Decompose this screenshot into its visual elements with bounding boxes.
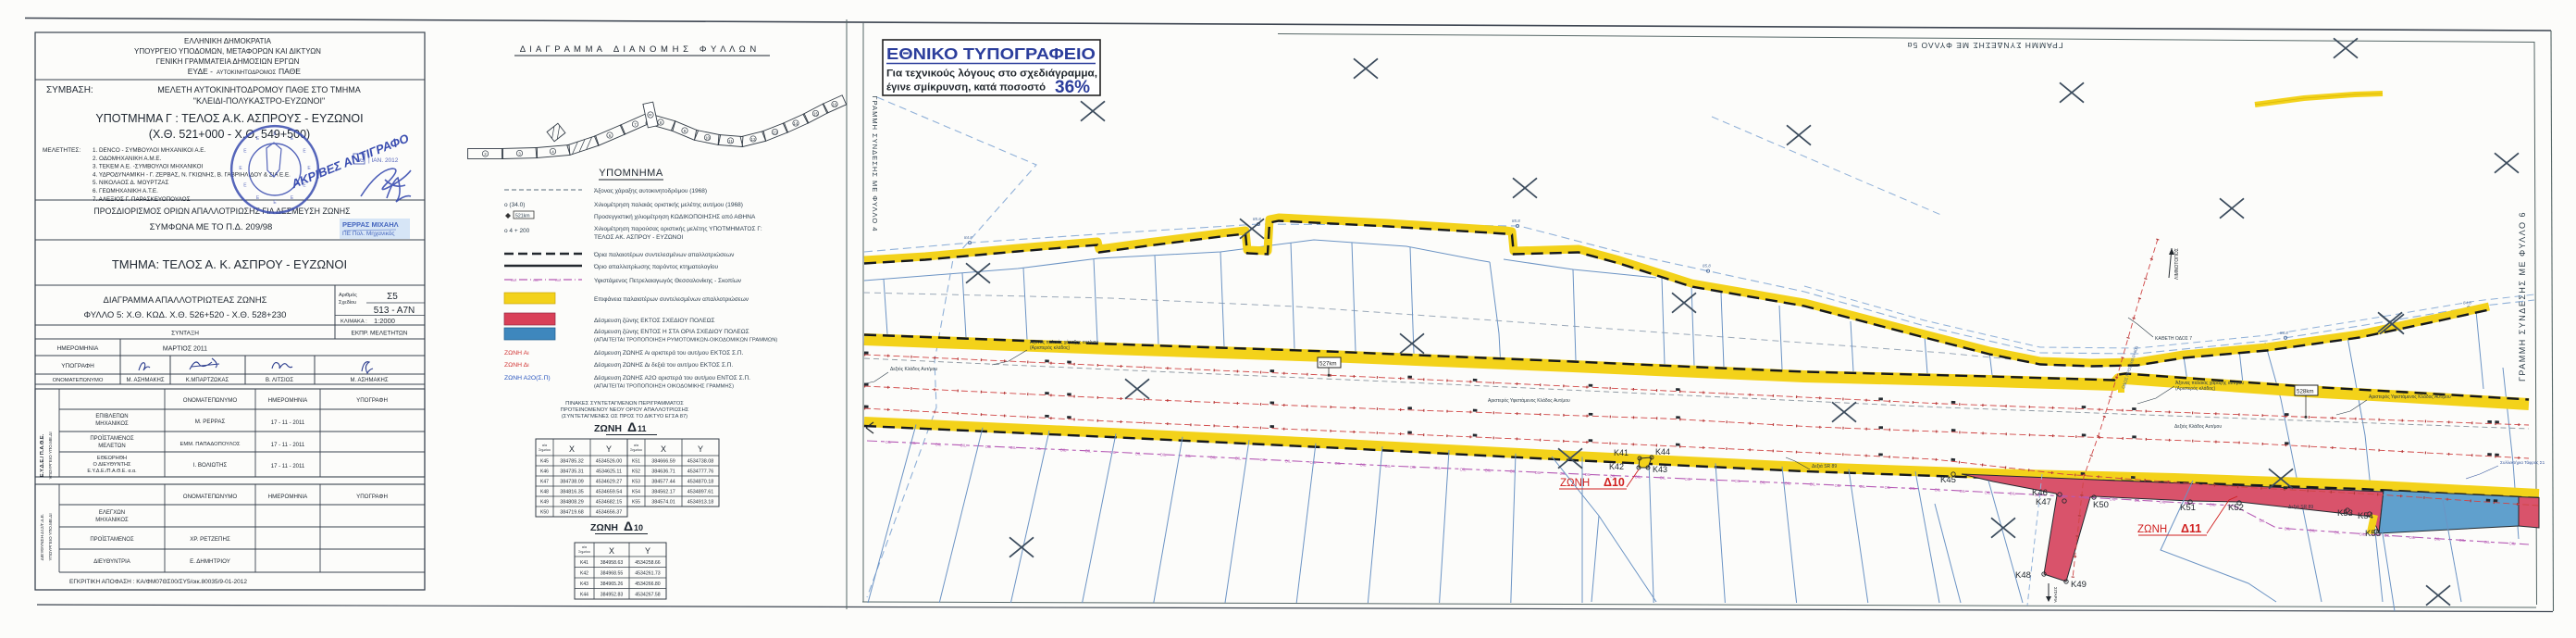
svg-text:Ο ΔΙΕΥΘΥΝΤΗΣ: Ο ΔΙΕΥΘΥΝΤΗΣ	[93, 462, 131, 468]
svg-text:ΗΜΕΡΟΜΗΝΙΑ: ΗΜΕΡΟΜΗΝΙΑ	[268, 494, 308, 500]
svg-text:Ι. ΒΟΛΙΩΤΗΣ: Ι. ΒΟΛΙΩΤΗΣ	[193, 462, 228, 469]
svg-text:ΣΥΜΦΩΝΑ ΜΕ ΤΟ Π.Δ. 209/98: ΣΥΜΦΩΝΑ ΜΕ ΤΟ Π.Δ. 209/98	[150, 222, 273, 232]
svg-text:384738.09: 384738.09	[560, 480, 583, 485]
svg-text:Όριο απαλλοτρίωσης παρόντος κτ: Όριο απαλλοτρίωσης παρόντος κτηματολογίο…	[593, 263, 718, 270]
svg-text:7. ΑΛΕΞΙΟΣ Γ. ΠΑΡΑΣΚΕΥΟΠΟΥΛΟΣ: 7. ΑΛΕΞΙΟΣ Γ. ΠΑΡΑΣΚΕΥΟΠΟΥΛΟΣ	[93, 196, 191, 203]
svg-text:| ΙΑΝ. 2012: | ΙΑΝ. 2012	[368, 157, 399, 164]
svg-text:2. ΟΔΟΜΗΧΑΝΙΚΗ Α.Μ.Ε.: 2. ΟΔΟΜΗΧΑΝΙΚΗ Α.Μ.Ε.	[93, 156, 162, 162]
svg-text:K42: K42	[580, 571, 588, 577]
svg-text:3. ΤΕΚΕΜ Α.Ε. -ΣΥΜΒΟΥΛΟΙ ΜΗΧΑ: 3. ΤΕΚΕΜ Α.Ε. -ΣΥΜΒΟΥΛΟΙ ΜΗΧΑΝΙΚΟΙ	[93, 164, 204, 170]
svg-text:13: 13	[773, 130, 778, 134]
svg-text:11: 11	[728, 139, 733, 144]
svg-text:K50: K50	[540, 510, 549, 516]
svg-text:ΟIL: ΟIL	[2384, 533, 2391, 538]
svg-text:K55: K55	[2365, 529, 2381, 539]
svg-text:4534897.61: 4534897.61	[687, 490, 713, 495]
svg-text:17 - 11 - 2011: 17 - 11 - 2011	[271, 443, 305, 448]
svg-text:ΟIL: ΟIL	[1335, 461, 1342, 466]
svg-text:ΡΕΡΡΑΣ ΜΙΧΑΗΛ: ΡΕΡΡΑΣ ΜΙΧΑΗΛ	[342, 220, 399, 229]
svg-text:K49: K49	[540, 500, 549, 506]
svg-text:513 - Α7Ν: 513 - Α7Ν	[374, 306, 415, 316]
svg-text:ΣΥΝΤΑΞΗ: ΣΥΝΤΑΞΗ	[171, 331, 199, 337]
svg-text:ΟIL: ΟIL	[1410, 465, 1417, 469]
svg-text:ΥΠΟΓΡΑΦΗ: ΥΠΟΓΡΑΦΗ	[356, 397, 388, 404]
svg-text:Αριθμός: Αριθμός	[339, 292, 357, 298]
svg-text:ΟIL: ΟIL	[2285, 527, 2291, 532]
svg-text:ΥΠΟΓΡΑΦΗ: ΥΠΟΓΡΑΦΗ	[61, 363, 94, 369]
svg-text:ΥΠΟΓΡΑΦΗ: ΥΠΟΓΡΑΦΗ	[356, 494, 388, 500]
svg-text:Κ.ΜΠΑΡΤΖΩΚΑΣ: Κ.ΜΠΑΡΤΖΩΚΑΣ	[186, 378, 229, 383]
svg-text:ΟIL: ΟIL	[2509, 542, 2516, 546]
svg-text:ΣΙΤΑΡΙΑ: ΣΙΤΑΡΙΑ	[2053, 587, 2058, 603]
svg-text:384952.83: 384952.83	[601, 593, 624, 598]
svg-text:85.8: 85.8	[1253, 217, 1261, 221]
svg-text:ΕΘΕΩΡΗΘΗ: ΕΘΕΩΡΗΘΗ	[97, 456, 127, 461]
svg-text:ΗΜΕΡΟΜΗΝΙΑ: ΗΜΕΡΟΜΗΝΙΑ	[57, 345, 99, 352]
svg-text:ΑΥΤΟΚΙΝΗΤΟΔΡΟΜΟΣ: ΑΥΤΟΚΙΝΗΤΟΔΡΟΜΟΣ	[217, 70, 277, 76]
svg-text:ΔΙΑΓΡΑΜΜΑ ΑΠΑΛΛΟΤΡΙΩΤΕΑΣ ΖΩΝΗΣ: ΔΙΑΓΡΑΜΜΑ ΑΠΑΛΛΟΤΡΙΩΤΕΑΣ ΖΩΝΗΣ	[103, 295, 266, 306]
svg-text:4. ΥΔΡΟΔΥΝΑΜΙΚΗ - Γ. ΖΕΡΒΑΣ,: 4. ΥΔΡΟΔΥΝΑΜΙΚΗ - Γ. ΖΕΡΒΑΣ, Ν. ΓΚΙΩΝΗΣ,…	[93, 171, 291, 178]
svg-text:ΟIL: ΟIL	[2085, 495, 2091, 500]
svg-text:K55: K55	[632, 500, 640, 506]
svg-text:ΕΘΝΙΚΟ ΤΥΠΟΓΡΑΦΕΙΟ: ΕΘΝΙΚΟ ΤΥΠΟΓΡΑΦΕΙΟ	[886, 44, 1096, 63]
svg-text:X: X	[609, 546, 614, 556]
svg-text:ΕΥΔΕ -: ΕΥΔΕ -	[188, 67, 213, 76]
svg-text:384816.35: 384816.35	[560, 490, 583, 495]
svg-text:ΟIL: ΟIL	[2160, 499, 2166, 504]
svg-text:384968.55: 384968.55	[601, 571, 624, 577]
svg-text:K41: K41	[1614, 448, 1629, 457]
svg-text:ΤΜΗΜΑ: ΤΕΛΟΣ Α. Κ. ΑΣΠΡΟΥ - Ε: ΤΜΗΜΑ: ΤΕΛΟΣ Α. Κ. ΑΣΠΡΟΥ - ΕΥΖΩΝΟΙ	[112, 257, 347, 271]
svg-text:ΟIL: ΟIL	[1835, 483, 1841, 488]
svg-text:ΠΡΟΣΔΙΟΡΙΣΜΟΣ ΟΡΙΩΝ ΑΠΑΛΛΟΤΡΙΩ: ΠΡΟΣΔΙΟΡΙΣΜΟΣ ΟΡΙΩΝ ΑΠΑΛΛΟΤΡΙΩΣΗΣ ΓΙΑ ΔΕ…	[93, 206, 351, 216]
svg-text:Δ: Δ	[627, 419, 637, 434]
svg-text:ΟIL: ΟIL	[2310, 529, 2316, 533]
svg-text:384735.31: 384735.31	[560, 469, 583, 475]
svg-text:K54: K54	[632, 490, 640, 495]
svg-text:ΔΙΕΥΘΥΝΣΗ Δ12/Γ.Δ.Ε.: ΔΙΕΥΘΥΝΣΗ Δ12/Γ.Δ.Ε.	[40, 514, 45, 561]
svg-text:K54: K54	[2358, 511, 2373, 521]
svg-text:ΠΡΟΪΣΤΑΜΕΝΟΣ: ΠΡΟΪΣΤΑΜΕΝΟΣ	[90, 536, 134, 543]
svg-text:Υφιστάμενος Πετρελαιαγωγός Θε: Υφιστάμενος Πετρελαιαγωγός Θεσσαλονίκης …	[594, 277, 741, 284]
svg-text:ΟIL: ΟIL	[1685, 477, 1691, 482]
svg-text:X: X	[661, 444, 666, 454]
svg-text:X: X	[569, 444, 575, 454]
svg-text:ΟIL: ΟIL	[2484, 540, 2491, 544]
svg-text:ΟIL: ΟIL	[1210, 455, 1217, 459]
svg-text:ΤΕΛΟΣ ΑΚ. ΑΣΠΡΟΥ - ΕΥΖΩΝΟΙ: ΤΕΛΟΣ ΑΚ. ΑΣΠΡΟΥ - ΕΥΖΩΝΟΙ	[594, 234, 683, 241]
svg-text:έγινε σμίκρυνση, κατά ποσοστό: έγινε σμίκρυνση, κατά ποσοστό	[886, 82, 1046, 94]
svg-text:Σημείου: Σημείου	[630, 448, 642, 452]
svg-text:K52: K52	[2228, 503, 2244, 513]
svg-text:K51: K51	[632, 459, 640, 465]
svg-text:ΟIL: ΟIL	[1910, 486, 1916, 491]
svg-text:K48: K48	[2015, 570, 2031, 581]
svg-text:ΓΡΑΜΜΗ ΣΥΝΔΕΣΗΣ ΜΕ ΦΥΛΛΟ 5α: ΓΡΑΜΜΗ ΣΥΝΔΕΣΗΣ ΜΕ ΦΥΛΛΟ 5α	[1907, 41, 2063, 50]
svg-text:4534913.18: 4534913.18	[687, 500, 713, 506]
svg-text:521km: 521km	[515, 214, 530, 219]
svg-text:ΟIL: ΟIL	[1010, 445, 1017, 450]
svg-text:Άξονας παλαιάς χάραξης αυτ/μου: Άξονας παλαιάς χάραξης αυτ/μου	[2175, 380, 2244, 386]
svg-text:ΚΑΘΕΤΗ ΟΔΟΣ 7: ΚΑΘΕΤΗ ΟΔΟΣ 7	[2155, 336, 2192, 342]
svg-text:ΟIL: ΟIL	[555, 278, 562, 282]
svg-text:ΟΝΟΜΑΤΕΠΩΝΥΜΟ: ΟΝΟΜΑΤΕΠΩΝΥΜΟ	[183, 397, 238, 404]
svg-text:ΟIL: ΟIL	[1435, 466, 1442, 470]
svg-text:11: 11	[638, 424, 647, 433]
svg-text:14: 14	[793, 121, 799, 126]
svg-text:(ΑΠΑΙΤΕΙΤΑΙ ΤΡΟΠΟΠΟΙΗΣΗ ΟΙΚΟΔΟ: (ΑΠΑΙΤΕΙΤΑΙ ΤΡΟΠΟΠΟΙΗΣΗ ΟΙΚΟΔΟΜΙΚΗΣ ΓΡΑΜ…	[594, 384, 734, 390]
svg-text:(Χ.Θ. 521+000 - Χ.Θ. 549+500): (Χ.Θ. 521+000 - Χ.Θ. 549+500)	[149, 128, 310, 141]
svg-text:ΟIL: ΟIL	[2459, 538, 2466, 543]
svg-text:ΟIL: ΟIL	[2210, 503, 2216, 507]
svg-text:12: 12	[750, 137, 756, 142]
svg-text:ΖΩΝΗ Α2Ο(Σ.Π): ΖΩΝΗ Α2Ο(Σ.Π)	[504, 375, 551, 382]
svg-text:(Αριστερός κλάδος): (Αριστερός κλάδος)	[2175, 385, 2215, 392]
svg-text:K44: K44	[1655, 447, 1670, 457]
svg-text:Αριστερός Υφιστάμενος Κλάδος Α: Αριστερός Υφιστάμενος Κλάδος Αυτ/μου	[2369, 394, 2451, 400]
svg-text:384562.17: 384562.17	[651, 490, 675, 495]
svg-text:17 - 11 - 2011: 17 - 11 - 2011	[271, 420, 305, 426]
svg-text:4534659.54: 4534659.54	[596, 490, 622, 495]
svg-text:Β. ΛΙΤΣΙΟΣ: Β. ΛΙΤΣΙΟΣ	[266, 378, 293, 383]
svg-text:16: 16	[832, 102, 837, 106]
svg-text:10: 10	[705, 135, 711, 140]
svg-text:Ε.Υ.Δ.Ε./ Π.Α.Θ.Ε.: Ε.Υ.Δ.Ε./ Π.Α.Θ.Ε.	[40, 433, 45, 477]
svg-text:4534261.73: 4534261.73	[635, 571, 661, 577]
svg-text:384808.29: 384808.29	[560, 500, 583, 506]
svg-text:Μ. ΑΣΗΜΑΚΗΣ: Μ. ΑΣΗΜΑΚΗΣ	[126, 378, 164, 383]
svg-text:ΟIL: ΟIL	[1185, 454, 1192, 458]
svg-text:Μ. ΡΕΡΡΑΣ: Μ. ΡΕΡΡΑΣ	[195, 419, 226, 425]
svg-text:1:2000: 1:2000	[374, 317, 395, 325]
svg-text:ΥΠΟΜΝΗΜΑ: ΥΠΟΜΝΗΜΑ	[599, 168, 663, 179]
svg-text:ΟIL: ΟIL	[960, 444, 967, 448]
svg-text:ΟIL: ΟIL	[1060, 447, 1067, 452]
svg-text:ΥΠΟΥΡΓΕΙΟ ΥΠΟ.ΜΕ.ΔΙ: ΥΠΟΥΡΓΕΙΟ ΥΠΟ.ΜΕ.ΔΙ	[48, 432, 53, 479]
svg-text:Δέσμευση ΖΩΝΗΣ Δι δεξιά του: Δέσμευση ΖΩΝΗΣ Δι δεξιά του αυτ/μου ΕΚΤΟ…	[594, 361, 733, 369]
svg-text:ΟIL: ΟIL	[2409, 535, 2416, 540]
svg-text:Σ5: Σ5	[387, 292, 398, 302]
svg-text:K49: K49	[2071, 580, 2087, 590]
svg-text:K45: K45	[540, 459, 549, 465]
svg-text:Y: Y	[698, 444, 703, 454]
svg-text:Χιλιομέτρηση παλαιάς οριστικής: Χιλιομέτρηση παλαιάς οριστικής μελέτης α…	[594, 201, 743, 208]
svg-text:84.8: 84.8	[2463, 300, 2471, 305]
svg-text:Χιλιομέτρηση παρούσας οριστική: Χιλιομέτρηση παρούσας οριστικής μελέτης …	[594, 225, 762, 232]
svg-text:ΟIL: ΟIL	[1135, 451, 1142, 456]
svg-text:5. ΝΙΚΟΛΑΟΣ Δ. ΜΟΥΡΤΖΑΣ: 5. ΝΙΚΟΛΑΟΣ Δ. ΜΟΥΡΤΖΑΣ	[93, 180, 168, 186]
svg-text:1. DENCO - ΣΥΜΒΟΥΛΟΙ ΜΗΧΑΝΙΚΟ: 1. DENCO - ΣΥΜΒΟΥΛΟΙ ΜΗΧΑΝΙΚΟΙ Α.Ε.	[93, 147, 205, 154]
svg-text:K48: K48	[540, 490, 549, 495]
svg-text:4534777.76: 4534777.76	[687, 469, 713, 475]
svg-text:ΜΗΧΑΝΙΚΟΣ: ΜΗΧΑΝΙΚΟΣ	[95, 518, 129, 523]
svg-text:384965.26: 384965.26	[601, 582, 624, 587]
svg-text:Δ: Δ	[624, 519, 633, 533]
svg-text:17 - 11 - 2011: 17 - 11 - 2011	[271, 464, 305, 469]
svg-text:ΓΡΑΜΜΗ ΣΥΝΔΕΣΗΣ ΜΕ ΦΥΛΛΟ 4: ΓΡΑΜΜΗ ΣΥΝΔΕΣΗΣ ΜΕ ΦΥΛΛΟ 4	[871, 96, 879, 232]
svg-text:ΜΕΛΕΤΗ ΑΥΤΟΚΙΝΗΤΟΔΡΟΜΟΥ ΠΑΘΕ Σ: ΜΕΛΕΤΗ ΑΥΤΟΚΙΝΗΤΟΔΡΟΜΟΥ ΠΑΘΕ ΣΤΟ ΤΜΗΜΑ	[157, 85, 360, 94]
svg-text:ΟΝΟΜΑΤΕΠΩΝΥΜΟ: ΟΝΟΜΑΤΕΠΩΝΥΜΟ	[183, 494, 238, 500]
svg-text:α/α: α/α	[634, 444, 638, 447]
svg-text:ο (34.0): ο (34.0)	[504, 202, 525, 208]
svg-text:K41: K41	[580, 560, 588, 566]
svg-text:ΟIL: ΟIL	[1635, 475, 1641, 480]
svg-text:ΟIL: ΟIL	[533, 278, 539, 282]
svg-text:Άξονας χάραξης αυτοκινητοδρόμο: Άξονας χάραξης αυτοκινητοδρόμου (1968)	[594, 187, 707, 194]
svg-text:ΟIL: ΟIL	[1935, 488, 1941, 493]
svg-text:ΟIL: ΟIL	[1460, 467, 1467, 471]
svg-text:K53: K53	[2337, 508, 2353, 519]
svg-text:ΖΩΝΗ Αι: ΖΩΝΗ Αι	[504, 350, 529, 357]
svg-text:Αριστερός Υφιστάμενος Κλάδος Α: Αριστερός Υφιστάμενος Κλάδος Αυτ/μου	[1488, 397, 1570, 404]
svg-text:ΠΙΝΑΚΕΣ ΣΥΝΤΕΤΑΓΜΕΝΩΝ ΠΕΡΙΓΡΑΜ: ΠΙΝΑΚΕΣ ΣΥΝΤΕΤΑΓΜΕΝΩΝ ΠΕΡΙΓΡΑΜΜΑΤΟΣ	[565, 401, 684, 407]
svg-text:85.8: 85.8	[1703, 264, 1711, 269]
svg-text:ΟIL: ΟIL	[1885, 485, 1891, 490]
svg-text:ΟIL: ΟIL	[985, 444, 992, 449]
svg-text:Σημείου: Σημείου	[578, 550, 590, 554]
svg-text:Δ11: Δ11	[2181, 522, 2201, 535]
svg-text:84.8: 84.8	[2280, 331, 2288, 335]
svg-text:ΔΙΕΥΘΥΝΤΡΙΑ: ΔΙΕΥΘΥΝΤΡΙΑ	[93, 559, 130, 565]
svg-text:ΟIL: ΟIL	[1160, 453, 1167, 457]
svg-text:ΕΠΙΒΛΕΠΩΝ: ΕΠΙΒΛΕΠΩΝ	[95, 414, 128, 419]
svg-text:K46: K46	[540, 469, 549, 475]
svg-text:Ε.Υ.Δ.Ε./Π.Α.Θ.Ε. α.α.: Ε.Υ.Δ.Ε./Π.Α.Θ.Ε. α.α.	[87, 469, 136, 474]
svg-text:ΟΝΟΜΑΤΕΠΩΝΥΜΟ: ΟΝΟΜΑΤΕΠΩΝΥΜΟ	[53, 378, 104, 383]
svg-text:ΖΩΝΗ: ΖΩΝΗ	[2137, 524, 2167, 535]
svg-text:ΖΩΝΗ: ΖΩΝΗ	[1560, 478, 1590, 489]
svg-text:4534625.11: 4534625.11	[596, 469, 622, 475]
svg-text:"ΚΛΕΙΔΙ-ΠΟΛΥΚΑΣΤΡΟ-ΕΥΖΩΝΟΙ": "ΚΛΕΙΔΙ-ΠΟΛΥΚΑΣΤΡΟ-ΕΥΖΩΝΟΙ"	[193, 96, 325, 106]
svg-text:ΣΥΜΒΑΣΗ:: ΣΥΜΒΑΣΗ:	[46, 85, 93, 95]
svg-text:384785.32: 384785.32	[560, 459, 583, 465]
svg-text:K50: K50	[2093, 500, 2109, 510]
svg-text:ΟIL: ΟIL	[1710, 478, 1716, 482]
svg-text:4534656.37: 4534656.37	[596, 510, 622, 516]
svg-text:ΟIL: ΟIL	[1785, 481, 1791, 485]
svg-text:ΕΛΕΓΧΩΝ: ΕΛΕΓΧΩΝ	[99, 510, 125, 516]
svg-text:ΦΥΛΛΟ 5: Χ.Θ. ΚΩΔ. Χ.Θ. 526+5: ΦΥΛΛΟ 5: Χ.Θ. ΚΩΔ. Χ.Θ. 526+520 - Χ.Θ. 5…	[84, 310, 287, 320]
svg-text:ΚΛΙΜΑΚΑ :: ΚΛΙΜΑΚΑ :	[341, 319, 367, 325]
svg-text:ΟIL: ΟIL	[1985, 490, 1991, 494]
svg-text:384577.44: 384577.44	[651, 480, 675, 485]
svg-text:(Αριστερός κλάδος): (Αριστερός κλάδος)	[1030, 344, 1070, 351]
svg-text:4534682.15: 4534682.15	[596, 500, 622, 506]
svg-text:ΟIL: ΟIL	[1535, 470, 1542, 475]
svg-text:4534258.66: 4534258.66	[635, 560, 661, 566]
svg-text:36%: 36%	[1055, 78, 1090, 97]
svg-text:ΕΜΜ. ΠΑΠΑΔΟΠΟΥΛΟΣ: ΕΜΜ. ΠΑΠΑΔΟΠΟΥΛΟΣ	[180, 442, 241, 447]
svg-text:4534267.58: 4534267.58	[635, 593, 661, 598]
svg-text:384666.59: 384666.59	[651, 459, 675, 465]
svg-text:ΟIL: ΟIL	[1260, 457, 1267, 462]
svg-text:ΖΩΝΗ Δι: ΖΩΝΗ Δι	[504, 362, 529, 369]
svg-text:ΜΑΡΤΙΟΣ 2011: ΜΑΡΤΙΟΣ 2011	[163, 346, 207, 353]
svg-text:ΟIL: ΟIL	[1660, 476, 1666, 481]
svg-text:Δέσμευση ΖΩΝΗΣ Α2Ο αριστερά τ: Δέσμευση ΖΩΝΗΣ Α2Ο αριστερά του αυτ/μου …	[594, 374, 750, 382]
svg-text:ΟIL: ΟIL	[2334, 530, 2341, 534]
svg-text:K51: K51	[2180, 503, 2196, 513]
svg-text:Δεξιός Κλάδος Αυτ/μου: Δεξιός Κλάδος Αυτ/μου	[890, 366, 937, 372]
svg-text:K43: K43	[1653, 465, 1667, 474]
svg-text:ΟIL: ΟIL	[1510, 469, 1517, 474]
svg-text:ΟIL: ΟIL	[1735, 479, 1741, 483]
svg-text:ΟIL: ΟIL	[1485, 468, 1492, 472]
svg-text:10: 10	[634, 523, 643, 532]
svg-text:ο 4 + 200: ο 4 + 200	[504, 228, 530, 234]
svg-text:528km: 528km	[2297, 389, 2314, 395]
svg-text:ΟIL: ΟIL	[2110, 496, 2116, 501]
svg-text:ΗΜΕΡΟΜΗΝΙΑ: ΗΜΕΡΟΜΗΝΙΑ	[268, 397, 308, 404]
svg-text:ΕΛΛΗΝΙΚΗ ΔΗΜΟΚΡΑΤΙΑ: ΕΛΛΗΝΙΚΗ ΔΗΜΟΚΡΑΤΙΑ	[184, 37, 272, 45]
svg-text:(ΑΠΑΙΤΕΙΤΑΙ ΤΡΟΠΟΠΟΙΗΣΗ ΡΥΜΟΤΟ: (ΑΠΑΙΤΕΙΤΑΙ ΤΡΟΠΟΠΟΙΗΣΗ ΡΥΜΟΤΟΜΙΚΩΝ-ΟΙΚΟ…	[594, 338, 777, 344]
svg-text:ΟIL: ΟIL	[1585, 472, 1591, 477]
svg-text:K43: K43	[580, 582, 588, 587]
svg-text:384719.68: 384719.68	[560, 510, 583, 516]
svg-text:4534526.00: 4534526.00	[596, 459, 622, 465]
svg-text:384636.71: 384636.71	[651, 469, 675, 475]
svg-text:4534629.27: 4534629.27	[596, 480, 622, 485]
svg-text:ΟIL: ΟIL	[1235, 457, 1242, 461]
svg-text:α/α: α/α	[542, 444, 547, 447]
svg-text:Δεξιά SR 89: Δεξιά SR 89	[1812, 463, 1837, 469]
svg-text:K53: K53	[632, 480, 640, 485]
svg-text:Συλλεκτήρια Τάφρος Σ1: Συλλεκτήρια Τάφρος Σ1	[2500, 459, 2545, 465]
svg-text:ΠΡΟΤΕΙΝΟΜΕΝΟΥ ΝΕΟΥ ΟΡΙΟΥ ΑΠΑΛΛ: ΠΡΟΤΕΙΝΟΜΕΝΟΥ ΝΕΟΥ ΟΡΙΟΥ ΑΠΑΛΛΟΤΡΙΩΣΗΣ	[561, 407, 689, 413]
svg-text:ΖΩΝΗ: ΖΩΝΗ	[590, 522, 618, 533]
svg-text:K47: K47	[2036, 497, 2051, 507]
svg-text:Y: Y	[606, 444, 612, 454]
svg-text:Ε. ΔΗΜΗΤΡΙΟΥ: Ε. ΔΗΜΗΤΡΙΟΥ	[190, 558, 230, 565]
svg-text:Δ Ι Α Γ Ρ Α Μ Μ Α Δ Ι Α Ν Ο: Δ Ι Α Γ Ρ Α Μ Μ Α Δ Ι Α Ν Ο Μ Η Σ Φ Υ Λ …	[520, 44, 757, 55]
svg-text:K45: K45	[1940, 475, 1956, 485]
svg-text:15: 15	[813, 111, 819, 116]
svg-text:ΟIL: ΟIL	[2434, 537, 2441, 542]
svg-text:384958.63: 384958.63	[601, 560, 624, 566]
svg-text:4534870.18: 4534870.18	[687, 480, 713, 485]
svg-text:Δεξιά SR 89: Δεξιά SR 89	[2288, 504, 2313, 510]
svg-text:ΟIL: ΟIL	[2260, 519, 2266, 523]
svg-text:ΜΕΛΕΤΗΤΕΣ:: ΜΕΛΕΤΗΤΕΣ:	[43, 147, 80, 154]
svg-text:ΥΠΟΤΜΗΜΑ Γ : ΤΕΛΟΣ Α.Κ. ΑΣΠΡΟΥ: ΥΠΟΤΜΗΜΑ Γ : ΤΕΛΟΣ Α.Κ. ΑΣΠΡΟΥΣ - ΕΥΖΩΝΟ…	[95, 112, 363, 125]
svg-text:Επιφάνεια παλαιοτέρων συντελεσ: Επιφάνεια παλαιοτέρων συντελεσμένων απαλ…	[594, 295, 749, 303]
svg-text:ΓΡΑΜΜΗ ΣΥΝΔΕΣΗΣ ΜΕ ΦΥΛΛΟ 6: ΓΡΑΜΜΗ ΣΥΝΔΕΣΗΣ ΜΕ ΦΥΛΛΟ 6	[2518, 211, 2527, 382]
svg-text:ΟIL: ΟIL	[1035, 446, 1042, 451]
svg-text:ΓΕΝΙΚΗ ΓΡΑΜΜΑΤΕΙΑ ΔΗΜΟΣΙΩΝ ΕΡΓ: ΓΕΝΙΚΗ ΓΡΑΜΜΑΤΕΙΑ ΔΗΜΟΣΙΩΝ ΕΡΓΩΝ	[156, 57, 300, 66]
svg-text:Σχεδίου: Σχεδίου	[339, 300, 356, 306]
svg-text:ΟIL: ΟIL	[511, 278, 517, 282]
svg-text:ΟIL: ΟIL	[1110, 450, 1117, 455]
svg-text:85.8: 85.8	[1512, 219, 1520, 223]
svg-text:K52: K52	[632, 469, 640, 475]
svg-text:ΟIL: ΟIL	[1385, 464, 1392, 469]
svg-text:ΟIL: ΟIL	[1085, 449, 1092, 454]
svg-text:(ΣΥΝΤΕΤΑΓΜΕΝΕΣ ΩΣ ΠΡΟΣ ΤΟ ΔΙΚΤ: (ΣΥΝΤΕΤΑΓΜΕΝΕΣ ΩΣ ΠΡΟΣ ΤΟ ΔΙΚΤΥΟ ΕΓΣΑ 87…	[562, 414, 687, 419]
svg-text:ΟIL: ΟIL	[2135, 498, 2141, 503]
svg-text:Δεξιός Κλάδος Αυτ/μου: Δεξιός Κλάδος Αυτ/μου	[2174, 423, 2222, 430]
svg-text:K47: K47	[540, 480, 549, 485]
svg-text:Y: Y	[645, 546, 650, 556]
svg-text:Προσεγγιστική χιλιομέτρηση ΚΩΔ: Προσεγγιστική χιλιομέτρηση ΚΩΔΙΚΟΠΟΙΗΣΗΣ…	[594, 213, 756, 220]
svg-text:ΠΡΟΪΣΤΑΜΕΝΟΣ: ΠΡΟΪΣΤΑΜΕΝΟΣ	[90, 435, 134, 442]
svg-text:Δέσμευση ΖΩΝΗΣ Αι αριστερά τ: Δέσμευση ΖΩΝΗΣ Αι αριστερά του αυτ/μου Ε…	[594, 349, 744, 357]
svg-text:Δέσμευση ζώνης ΕΚΤΟΣ ΣΧΕΔΙΟΥ Π: Δέσμευση ζώνης ΕΚΤΟΣ ΣΧΕΔΙΟΥ ΠΟΛΕΩΣ	[594, 317, 715, 324]
svg-text:527km: 527km	[1319, 361, 1337, 368]
svg-text:Δ10: Δ10	[1604, 476, 1625, 489]
svg-text:α/α: α/α	[582, 545, 587, 549]
svg-text:Δέσμευση ζώνης ΕΝΤΟΣ Η ΣΤΑ ΟΡΙ: Δέσμευση ζώνης ΕΝΤΟΣ Η ΣΤΑ ΟΡΙΑ ΣΧΕΔΙΟΥ …	[594, 328, 749, 335]
svg-text:ΟIL: ΟIL	[1760, 480, 1766, 484]
svg-text:ΜΗΧΑΝΙΚΟΣ: ΜΗΧΑΝΙΚΟΣ	[95, 421, 129, 427]
svg-text:ΧΡ. ΡΕΤΖΕΠΗΣ: ΧΡ. ΡΕΤΖΕΠΗΣ	[190, 536, 230, 543]
svg-text:Άξονας παλαιάς χάραξης αυτ/μου: Άξονας παλαιάς χάραξης αυτ/μου	[1030, 339, 1098, 345]
svg-text:K42: K42	[1609, 462, 1624, 471]
svg-text:Μ. ΑΣΗΜΑΚΗΣ: Μ. ΑΣΗΜΑΚΗΣ	[350, 378, 388, 383]
svg-text:4534738.08: 4534738.08	[687, 459, 713, 465]
svg-text:Όρια παλαιοτέρων συντελεσμένων: Όρια παλαιοτέρων συντελεσμένων απαλλοτρι…	[593, 251, 734, 258]
svg-text:ΟIL: ΟIL	[1360, 462, 1367, 467]
svg-text:Σημείου: Σημείου	[539, 448, 551, 452]
svg-text:ΟIL: ΟIL	[1960, 489, 1966, 494]
svg-text:ΟIL: ΟIL	[885, 440, 892, 444]
svg-text:ΕΓΚΡΙΤΙΚΗ ΑΠΟΦΑΣΗ : ΚΑ/ΦΜ07Θ: ΕΓΚΡΙΤΙΚΗ ΑΠΟΦΑΣΗ : ΚΑ/ΦΜ07ΘΣ00/ΣΥ5/οικ.…	[69, 579, 247, 585]
svg-text:ΟIL: ΟIL	[1810, 482, 1816, 487]
svg-text:ΟIL: ΟIL	[1860, 484, 1866, 489]
svg-text:ΟIL: ΟIL	[1285, 458, 1292, 463]
svg-text:4534266.80: 4534266.80	[635, 582, 661, 587]
svg-text:ΟIL: ΟIL	[2010, 492, 2016, 496]
svg-text:ΥΠΟΥΡΓΕΙΟ ΥΠΟΔΟΜΩΝ, ΜΕΤΑΦΟΡΩΝ: ΥΠΟΥΡΓΕΙΟ ΥΠΟΔΟΜΩΝ, ΜΕΤΑΦΟΡΩΝ ΚΑΙ ΔΙΚΤΥΩ…	[134, 47, 321, 56]
svg-text:384574.01: 384574.01	[651, 500, 675, 506]
svg-text:ΛΙΜΝΟΤΟΠΟΣ: ΛΙΜΝΟΤΟΠΟΣ	[2174, 248, 2180, 280]
svg-text:ΕΘ: ΕΘ	[356, 158, 365, 164]
svg-text:ΜΕΛΕΤΩΝ: ΜΕΛΕΤΩΝ	[98, 444, 125, 449]
svg-text:K44: K44	[580, 593, 588, 598]
svg-text:ΖΩΝΗ: ΖΩΝΗ	[594, 423, 622, 434]
svg-text:ΥΠΟΥΡΓΕΙΟ ΥΠΟ.ΜΕ.ΔΙ: ΥΠΟΥΡΓΕΙΟ ΥΠΟ.ΜΕ.ΔΙ	[48, 513, 53, 560]
svg-text:ΟIL: ΟIL	[935, 442, 942, 446]
svg-text:ΕΚΠΡ. ΜΕΛΕΤΗΤΩΝ: ΕΚΠΡ. ΜΕΛΕΤΗΤΩΝ	[352, 331, 408, 337]
svg-text:6. ΓΕΩΜΗΧΑΝΙΚΗ Α.Τ.Ε.: 6. ΓΕΩΜΗΧΑΝΙΚΗ Α.Τ.Ε.	[93, 188, 158, 194]
svg-text:ΠΑΘΕ: ΠΑΘΕ	[279, 67, 301, 76]
